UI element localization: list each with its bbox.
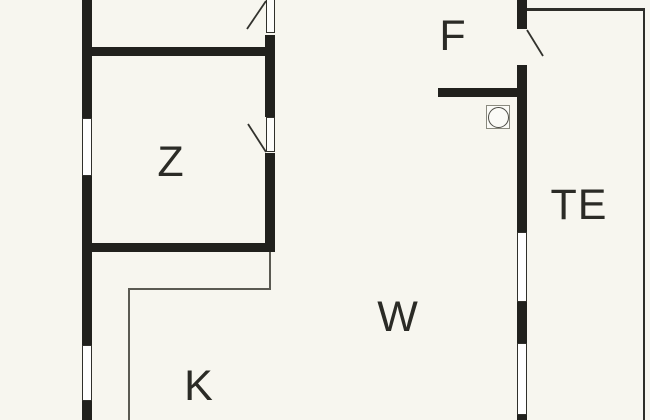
floor-plan: F Z W K TE <box>0 0 650 420</box>
wall-z-right-lower-segment <box>265 153 275 252</box>
room-label-z: Z <box>146 137 196 187</box>
room-label-f: F <box>428 11 478 61</box>
room-label-w: W <box>368 292 428 342</box>
window-right-upper <box>517 232 527 302</box>
kitchen-boundary-right-vertical <box>269 252 271 289</box>
window-left-lower <box>82 345 92 401</box>
door-leaf-z <box>266 117 275 152</box>
outer-wall-right-bottom-segment <box>517 415 527 420</box>
window-left-upper <box>82 118 92 176</box>
wall-z-right-upper-segment <box>265 35 275 117</box>
appliance-symbol <box>486 105 510 129</box>
outer-wall-right-top-segment <box>517 0 527 29</box>
door-swing-line-z <box>248 124 266 152</box>
terrace-boundary-right <box>643 8 646 420</box>
wall-z-bottom <box>82 243 273 252</box>
room-label-te: TE <box>547 180 611 230</box>
door-leaf-upper-room <box>266 0 275 33</box>
window-right-lower <box>517 343 527 415</box>
appliance-drum-icon <box>488 107 509 128</box>
kitchen-boundary-left-vertical <box>128 288 130 420</box>
room-label-k: K <box>174 361 224 411</box>
kitchen-boundary-horizontal <box>128 288 271 290</box>
wall-top-room-divider <box>82 47 275 56</box>
door-swing-line-terrace <box>527 30 543 56</box>
door-swing-line-upper-room <box>247 1 266 29</box>
wall-f-bottom <box>438 88 527 97</box>
outer-wall-right-between-windows <box>517 302 527 343</box>
terrace-boundary-top <box>527 8 645 11</box>
outer-wall-right-mid-segment <box>517 65 527 232</box>
